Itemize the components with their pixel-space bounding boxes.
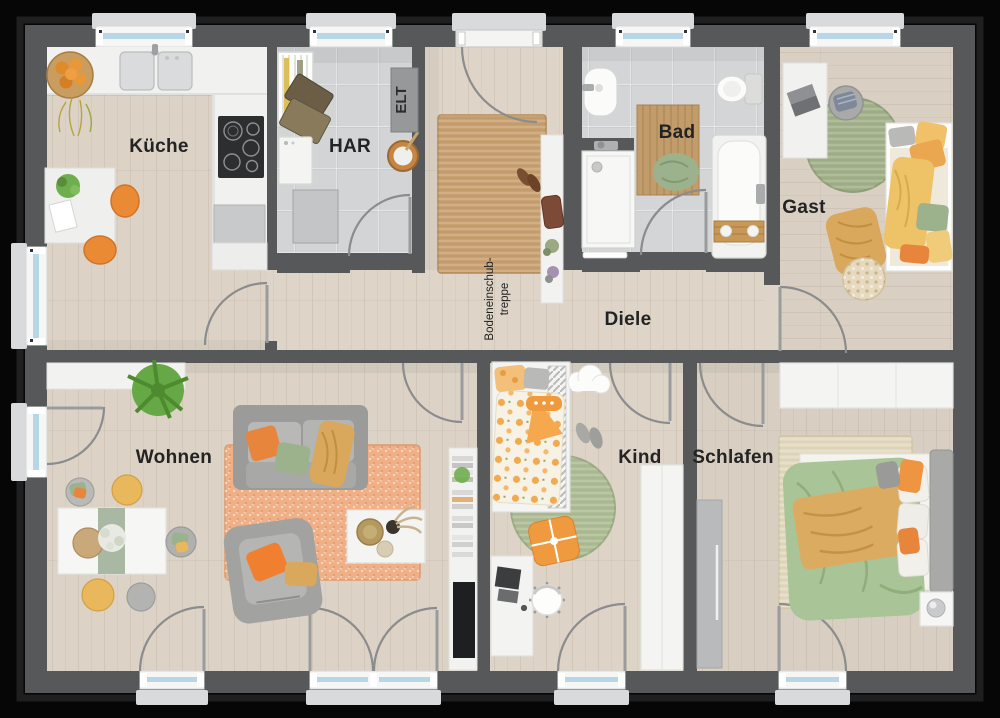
label-diele: Diele	[605, 309, 652, 330]
entry-rug	[438, 115, 546, 273]
shelf-plant	[454, 467, 470, 483]
tub-faucet	[756, 184, 765, 204]
label-kind: Kind	[618, 447, 661, 468]
gast-pillow-gray	[888, 125, 916, 147]
kitchen-appliance	[214, 205, 265, 243]
label-wohnen: Wohnen	[136, 447, 212, 468]
wall-gast-schlafen	[765, 350, 953, 363]
armchair	[222, 516, 325, 626]
tv	[453, 582, 475, 658]
gast-pillow-green	[916, 203, 950, 233]
label-gast: Gast	[782, 197, 826, 218]
wall-kueche-har	[267, 47, 277, 253]
attic-label-line1: Bodeneinschub-	[484, 257, 496, 340]
label-kueche: Küche	[129, 136, 189, 157]
wood-bowl	[73, 528, 103, 558]
dining-chair-yellow-1	[112, 475, 142, 505]
orange-chair-1	[111, 185, 139, 217]
floorplan-stage: ELT Bodeneinschub- treppe	[0, 0, 1000, 718]
dryer-box	[293, 190, 338, 243]
kind-wardrobe	[641, 465, 683, 670]
washing-machine	[279, 137, 312, 184]
orange-chair-2	[84, 236, 116, 264]
window-kueche-top	[92, 13, 196, 47]
bathtub	[712, 135, 766, 258]
dining-chair-gray-3	[127, 583, 155, 611]
floorplan-drawing: ELT Bodeneinschub- treppe	[0, 0, 1000, 718]
sofa	[233, 405, 368, 490]
elt-panel: ELT	[391, 68, 418, 132]
label-har: HAR	[329, 136, 371, 157]
wall-entrance-bad	[563, 47, 582, 270]
kind-laptop	[495, 566, 522, 589]
towel-rail	[583, 252, 627, 258]
wall-kind-schlafen	[683, 350, 697, 671]
pillow-orange-2	[897, 527, 920, 555]
label-schlafen: Schlafen	[692, 447, 774, 468]
wall-har-bottom	[277, 253, 350, 273]
sofa-pillow-green	[274, 441, 312, 475]
gast-pouf	[843, 258, 885, 300]
window-kueche-left	[11, 243, 47, 349]
headboard	[930, 450, 953, 592]
window-gast-top	[806, 13, 904, 47]
tub-caddy	[714, 221, 764, 242]
label-bad: Bad	[659, 122, 696, 143]
fruit-bowl	[47, 52, 93, 98]
kitchen-cooktop	[218, 116, 264, 178]
bathroom-sink	[582, 68, 617, 116]
elt-label: ELT	[393, 86, 410, 113]
armchair-pillow-mustard	[284, 561, 317, 586]
handbag	[541, 195, 564, 229]
gast-pillow-orange-small	[899, 244, 929, 264]
pillow-gray	[875, 460, 901, 489]
dining-chair-yellow-2	[82, 579, 114, 611]
kind-floor-pillow	[527, 515, 581, 568]
schlafen-cabinet-left	[697, 500, 722, 668]
kind-pillow-dotted	[494, 364, 527, 392]
gast-bed	[883, 121, 954, 271]
media-board	[449, 448, 477, 670]
kind-bed	[491, 362, 570, 512]
gast-pillow-yellow2	[925, 229, 953, 263]
schlafen-wardrobe-top	[780, 363, 953, 408]
kitchen-fridge	[212, 243, 267, 270]
window-har-top	[306, 13, 396, 47]
coffee-table	[347, 507, 425, 563]
kind-pillow-gray	[523, 367, 550, 390]
gast-chair	[829, 86, 863, 120]
toilet	[717, 74, 762, 104]
wall-wohnen-kind	[477, 350, 490, 671]
kind-desk	[491, 556, 533, 656]
green-towel	[653, 153, 699, 191]
kind-desk-chair	[529, 582, 565, 618]
attic-label-line2: treppe	[499, 283, 511, 316]
wall-corridor-west	[47, 350, 403, 363]
window-bad-top	[612, 13, 694, 47]
nightstand	[920, 592, 953, 626]
shower	[582, 141, 635, 248]
